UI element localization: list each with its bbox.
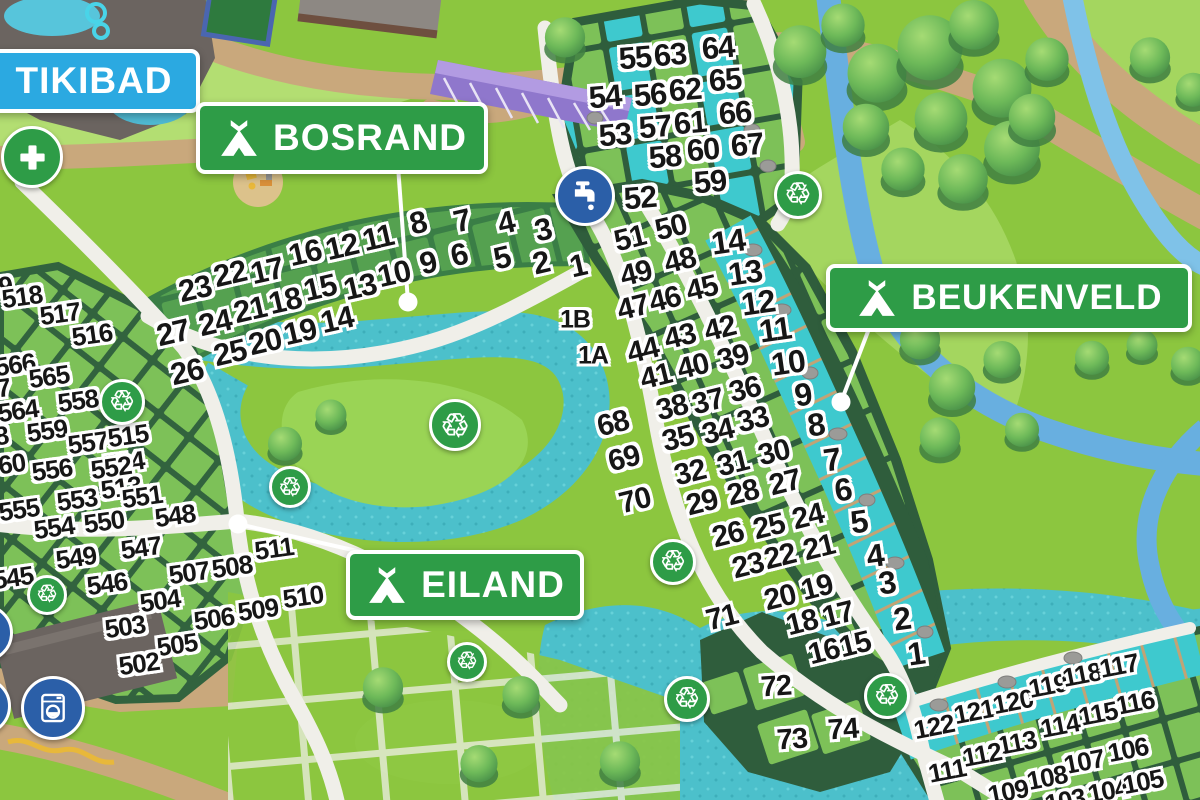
plot-label-503: 503	[103, 609, 147, 645]
plot-label-23: 23	[729, 546, 768, 587]
recycling-icon: ♲	[99, 379, 145, 425]
plot-label-15: 15	[836, 625, 875, 666]
plot-label-547: 547	[119, 530, 163, 566]
plot-label-508: 508	[210, 549, 254, 585]
plot-label-556: 556	[30, 452, 74, 488]
plot-label-53: 53	[597, 116, 632, 155]
plot-label-107: 107	[1061, 743, 1107, 781]
plot-label-45: 45	[683, 269, 722, 310]
plot-label-33: 33	[734, 400, 773, 441]
plot-label-8: 8	[406, 204, 430, 243]
plot-label-55: 55	[617, 39, 652, 78]
recycling-icon: ♲	[27, 575, 67, 615]
plot-label-105: 105	[1120, 763, 1166, 800]
recycle-glyph: ♲	[874, 682, 900, 711]
plot-label-504: 504	[138, 583, 182, 619]
plot-label-505: 505	[155, 627, 199, 663]
plot-label-122: 122	[911, 708, 957, 746]
recycle-glyph: ♲	[36, 583, 58, 607]
recycle-glyph: ♲	[785, 180, 812, 210]
plot-label-51: 51	[611, 219, 650, 260]
plot-label-28: 28	[724, 473, 763, 514]
plot-label-109: 109	[985, 773, 1031, 800]
recycle-glyph: ♲	[440, 409, 470, 442]
plot-label-65: 65	[707, 61, 742, 100]
plot-label-560: 560	[0, 447, 27, 483]
plot-label-1B: 1B	[560, 306, 590, 335]
plot-label-502: 502	[117, 646, 161, 682]
plot-label-16: 16	[285, 232, 325, 274]
plot-label-506: 506	[192, 601, 236, 637]
campground-map[interactable]: 5563645456626553576166586067595251504948…	[0, 0, 1200, 800]
plot-label-10: 10	[374, 253, 414, 295]
tent-icon	[855, 280, 899, 316]
plot-label-511: 511	[253, 531, 296, 567]
plot-label-29: 29	[683, 483, 722, 524]
plot-label-518: 518	[0, 279, 44, 315]
plot-label-52: 52	[622, 179, 657, 218]
plot-label-19: 19	[280, 311, 320, 353]
recycle-glyph: ♲	[456, 650, 478, 674]
plot-label-11: 11	[359, 217, 397, 259]
plot-label-1: 1	[905, 635, 927, 674]
plot-label-12: 12	[322, 226, 362, 268]
plot-label-27: 27	[766, 463, 805, 504]
plot-label-67: 67	[729, 126, 764, 165]
plot-label-5: 5	[848, 503, 870, 542]
banner-beukenveld: BEUKENVELD	[826, 264, 1192, 332]
plot-label-72: 72	[760, 669, 792, 704]
plot-label-554: 554	[32, 510, 76, 546]
plot-label-516: 516	[70, 317, 114, 353]
plot-label-26: 26	[167, 351, 207, 393]
plot-label-114: 114	[1038, 707, 1082, 745]
plot-label-115: 115	[1076, 695, 1120, 733]
plot-label-70: 70	[616, 481, 655, 522]
plot-label-9: 9	[416, 244, 440, 283]
plot-label-2: 2	[891, 600, 913, 639]
recycling-icon: ♲	[774, 171, 822, 219]
recycle-glyph: ♲	[109, 388, 135, 417]
plot-label-58: 58	[647, 138, 682, 177]
banner-tikibad: TIKIBAD	[0, 49, 200, 113]
plot-label-559: 559	[25, 413, 69, 449]
plot-label-40: 40	[674, 347, 713, 388]
plot-label-509: 509	[236, 592, 280, 628]
water-tap-icon	[555, 166, 615, 226]
banner-bosrand: BOSRAND	[196, 102, 488, 174]
banner-label: BEUKENVELD	[911, 278, 1162, 318]
recycle-glyph: ♲	[674, 685, 700, 714]
plot-label-69: 69	[605, 439, 644, 480]
plot-label-21: 21	[800, 528, 839, 569]
plot-label-20: 20	[245, 321, 285, 363]
recycling-icon: ♲	[650, 539, 696, 585]
plot-label-548: 548	[153, 498, 197, 534]
plot-label-54: 54	[587, 78, 622, 117]
plot-label-111: 111	[926, 752, 969, 790]
plot-label-117: 117	[1097, 647, 1141, 685]
tent-icon	[365, 567, 409, 603]
plot-label-73: 73	[776, 722, 808, 757]
plot-label-35: 35	[659, 419, 698, 460]
banner-label: EILAND	[421, 564, 565, 606]
plot-label-71: 71	[703, 598, 742, 639]
plot-label-74: 74	[827, 712, 859, 747]
plot-label-46: 46	[646, 280, 685, 321]
plot-label-22: 22	[210, 253, 250, 295]
plot-label-3: 3	[876, 564, 898, 603]
recycle-glyph: ♲	[278, 474, 301, 500]
plot-label-112: 112	[960, 736, 1004, 774]
first-aid-icon	[1, 126, 63, 188]
plot-label-546: 546	[85, 566, 129, 602]
recycling-icon: ♲	[429, 399, 481, 451]
plot-label-27: 27	[153, 312, 193, 354]
banner-eiland: EILAND	[346, 550, 584, 620]
plot-label-1A: 1A	[578, 342, 608, 371]
plot-label-1: 1	[566, 247, 590, 286]
plot-label-121: 121	[951, 693, 997, 731]
plot-label-59: 59	[692, 163, 727, 202]
banner-label: BOSRAND	[273, 117, 467, 159]
plot-label-7: 7	[450, 202, 474, 241]
plot-label-6: 6	[447, 236, 471, 275]
plot-label-106: 106	[1105, 731, 1151, 769]
plot-label-5: 5	[490, 239, 514, 278]
recycling-icon: ♲	[269, 466, 311, 508]
recycling-icon: ♲	[864, 673, 910, 719]
plot-label-8: 8	[805, 406, 827, 445]
recycling-icon: ♲	[447, 642, 487, 682]
banner-label: TIKIBAD	[15, 60, 172, 102]
plot-labels-layer: 5563645456626553576166586067595251504948…	[0, 0, 1200, 800]
plot-label-68: 68	[594, 404, 633, 445]
recycle-glyph: ♲	[660, 548, 686, 577]
plot-label-510: 510	[281, 579, 325, 615]
plot-label-22: 22	[761, 537, 800, 578]
plot-label-116: 116	[1113, 684, 1157, 722]
plot-label-4: 4	[494, 204, 518, 243]
plot-label-23: 23	[175, 268, 215, 310]
recycling-icon: ♲	[664, 676, 710, 722]
plot-label-2: 2	[529, 244, 553, 283]
plot-label-63: 63	[652, 36, 687, 75]
plot-label-552: 552	[89, 450, 133, 486]
tent-icon	[217, 120, 261, 156]
laundry-icon	[21, 676, 85, 740]
plot-label-25: 25	[210, 332, 250, 374]
